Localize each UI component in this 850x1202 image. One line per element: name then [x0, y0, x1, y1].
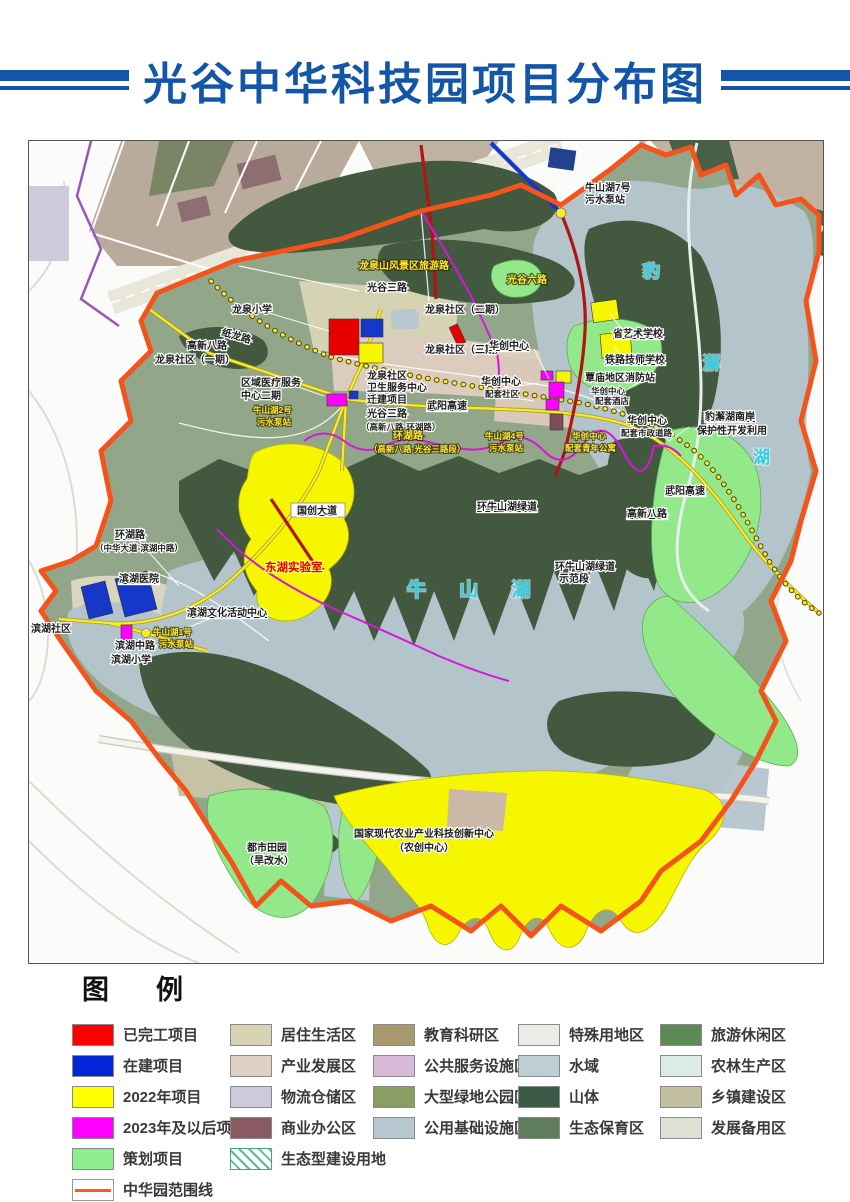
legend-item: 商业办公区 [230, 1116, 373, 1139]
title-bar-right-rules [721, 70, 850, 90]
label-greenway-demo: 环牛山湖绿道 [555, 560, 615, 573]
label-guanggu3-mid: 光谷三路 [366, 407, 408, 420]
label-lq1: 龙泉社区（一期） [154, 353, 235, 366]
label-huachuang: 华创中心 [489, 339, 529, 352]
label-longquan-primary: 龙泉小学 [231, 303, 272, 316]
planning-map: 牛山湖7号 污水泵站 龙泉山风景区旅游路 光谷六路 光谷三路 龙泉小学 纸龙路 … [29, 141, 823, 963]
inconstruction-block [361, 319, 383, 337]
legend-swatch-reserve-land [660, 1117, 702, 1139]
legend-item: 山体 [518, 1085, 660, 1108]
svg-text:配套社区: 配套社区 [485, 389, 520, 399]
rule-thick [721, 70, 850, 81]
svg-text:迁建项目: 迁建项目 [367, 393, 407, 406]
legend-item: 居住生活区 [230, 1023, 373, 1046]
label-scenic-road: 龙泉山风景区旅游路 [358, 259, 450, 272]
label-binhu-hospital: 滨湖医院 [119, 572, 159, 585]
svg-text:（旱改水）: （旱改水） [244, 854, 294, 867]
label-binhu-mid-road: 滨湖中路 [115, 639, 156, 652]
legend-swatch-eco-construction [230, 1148, 272, 1170]
label-pump4: 牛山湖4号 [485, 431, 524, 441]
legend-item: 特殊用地区 [518, 1023, 660, 1046]
legend-swatch-education [373, 1024, 415, 1046]
legend-column-3: 教育科研区 公共服务设施区 大型绿地公园区 公用基础设施区 [373, 1023, 518, 1202]
legend-item: 生态型建设用地 [230, 1147, 373, 1170]
label-gaoxin8-se: 高新八路 [627, 507, 668, 520]
legend-item: 在建项目 [72, 1054, 230, 1077]
label-guanggu6: 光谷六路 [506, 273, 548, 286]
label-art-school: 省艺术学校 [612, 327, 664, 340]
legend-item: 水域 [518, 1054, 660, 1077]
legend-swatch-park-green [373, 1086, 415, 1108]
nw-logistics-block [29, 186, 69, 261]
legend-item: 物流仓储区 [230, 1085, 373, 1108]
label-binhu-community: 滨湖社区 [31, 622, 71, 635]
title-bar-left-rules [0, 70, 129, 90]
legend-swatch-agriculture [660, 1055, 702, 1077]
label-pump1: 牛山湖1号 [153, 627, 192, 637]
svg-text:保护性开发利用: 保护性开发利用 [696, 424, 767, 437]
legend-swatch-commercial [230, 1117, 272, 1139]
legend-item: 发展备用区 [660, 1116, 810, 1139]
pump7-dot [556, 208, 566, 218]
completed-block [329, 319, 359, 355]
label-hygiene-center: 龙泉社区 [366, 369, 407, 382]
page-title: 光谷中华科技园项目分布图 [143, 48, 707, 112]
label-medical: 区域医疗服务 [241, 376, 302, 389]
label-huanhu-mid: 环湖路 [393, 429, 424, 442]
svg-text:污水泵站: 污水泵站 [585, 193, 625, 206]
legend-column-5: 旅游休闲区 农林生产区 乡镇建设区 发展备用区 [660, 1023, 810, 1202]
rule-thin [721, 86, 850, 90]
legend-swatch-completed [72, 1024, 114, 1046]
legend-swatch-planned [72, 1148, 114, 1170]
label-guochuang: 国创大道 [297, 504, 337, 517]
legend-item: 教育科研区 [373, 1023, 518, 1046]
label-lq2: 龙泉社区（二期） [424, 303, 505, 316]
label-huachuang-comm: 华创中心 [481, 375, 521, 388]
svg-text:配套市政道路: 配套市政道路 [621, 428, 673, 438]
legend-swatch-2022 [72, 1086, 114, 1108]
legend: 图 例 已完工项目 在建项目 2022年项目 2023年及以后项目 策划项 [0, 968, 850, 1202]
svg-text:（高新八路-光谷三路段）: （高新八路-光谷三路段） [369, 444, 465, 454]
legend-swatch-inconstruction [72, 1055, 114, 1077]
legend-column-2: 居住生活区 产业发展区 物流仓储区 商业办公区 生态型建设用地 [230, 1023, 373, 1202]
svg-text:污水泵站: 污水泵站 [159, 639, 194, 649]
legend-item: 产业发展区 [230, 1054, 373, 1077]
svg-text:污水泵站: 污水泵站 [489, 443, 524, 453]
label-binhu-culture: 滨湖文化活动中心 [187, 606, 267, 619]
legend-grid: 已完工项目 在建项目 2022年项目 2023年及以后项目 策划项目 中华园范围… [72, 1023, 850, 1202]
legend-swatch-township [660, 1086, 702, 1108]
svg-text:配套酒店: 配套酒店 [595, 396, 630, 406]
legend-swatch-special [518, 1024, 560, 1046]
svg-text:卫生服务中心: 卫生服务中心 [367, 381, 427, 394]
legend-item: 中华园范围线 [72, 1178, 230, 1201]
legend-item: 旅游休闲区 [660, 1023, 810, 1046]
label-gaoxin8-w: 高新八路 [187, 339, 228, 352]
svg-text:污水泵站: 污水泵站 [257, 417, 292, 427]
future-block [549, 382, 564, 398]
svg-text:中心二期: 中心二期 [241, 389, 281, 402]
label-niushan-lake: 牛 山 湖 [407, 578, 545, 601]
school-block [548, 147, 577, 170]
legend-item: 2022年项目 [72, 1085, 230, 1108]
label-greenway: 环牛山湖绿道 [477, 500, 537, 513]
svg-text:（农创中心）: （农创中心） [394, 841, 454, 854]
legend-swatch-mountain [518, 1086, 560, 1108]
label-wuyang-se: 武阳高速 [665, 484, 705, 497]
legend-item: 农林生产区 [660, 1054, 810, 1077]
label-baoxie-3: 湖 [753, 448, 770, 467]
legend-title: 图 例 [82, 968, 850, 1007]
legend-item: 乡镇建设区 [660, 1085, 810, 1108]
label-wuyang-mid: 武阳高速 [427, 399, 467, 412]
legend-item: 公用基础设施区 [373, 1116, 518, 1139]
label-guanggu3: 光谷三路 [366, 281, 408, 294]
legend-swatch-2023plus [72, 1117, 114, 1139]
legend-swatch-boundary-line [72, 1179, 114, 1201]
legend-column-projects: 已完工项目 在建项目 2022年项目 2023年及以后项目 策划项目 中华园范围… [72, 1023, 230, 1202]
svg-text:配套青年公寓: 配套青年公寓 [565, 443, 617, 453]
legend-item: 生态保育区 [518, 1116, 660, 1139]
label-railway-school: 铁路技师学校 [605, 353, 666, 366]
label-muni-road: 华创中心 [627, 414, 667, 427]
label-binhu-primary: 滨湖小学 [111, 653, 151, 666]
label-agri-center: 国家现代农业产业科技创新中心 [354, 827, 494, 840]
legend-item: 公共服务设施区 [373, 1054, 518, 1077]
label-pump7: 牛山湖7号 [585, 181, 631, 194]
legend-item: 大型绿地公园区 [373, 1085, 518, 1108]
legend-swatch-infrastructure [373, 1117, 415, 1139]
rule-thick [0, 70, 129, 81]
svg-text:示范段: 示范段 [559, 572, 589, 585]
rule-thin [0, 86, 129, 90]
label-donghu-lab: 东湖实验室 [265, 560, 323, 574]
title-bar: 光谷中华科技园项目分布图 [0, 48, 850, 112]
svg-text:（中华大道-滨湖中路）: （中华大道-滨湖中路） [95, 543, 183, 553]
map-canvas: 牛山湖7号 污水泵站 龙泉山风景区旅游路 光谷六路 光谷三路 龙泉小学 纸龙路 … [28, 140, 824, 964]
label-pump2: 牛山湖2号 [253, 405, 292, 415]
label-baoxie-south: 豹澥湖南岸 [704, 410, 755, 423]
legend-swatch-industry [230, 1055, 272, 1077]
legend-item: 已完工项目 [72, 1023, 230, 1046]
label-garden: 都市田园 [246, 841, 287, 854]
label-youth: 华创中心 [572, 431, 607, 441]
legend-swatch-tourism [660, 1024, 702, 1046]
legend-item: 2023年及以后项目 [72, 1116, 230, 1139]
legend-swatch-logistics [230, 1086, 272, 1108]
label-fire-station: 覃庙地区消防站 [585, 371, 655, 384]
legend-swatch-water [518, 1055, 560, 1077]
legend-swatch-public-service [373, 1055, 415, 1077]
label-baoxie-1: 豹 [642, 261, 660, 281]
legend-swatch-residential [230, 1024, 272, 1046]
label-huanhu-w: 环湖路 [115, 528, 146, 541]
legend-swatch-eco-reserve [518, 1117, 560, 1139]
legend-column-4: 特殊用地区 水域 山体 生态保育区 [518, 1023, 660, 1202]
label-hotel: 华创中心 [591, 386, 626, 396]
label-baoxie-2: 澥 [703, 353, 720, 373]
legend-item: 策划项目 [72, 1147, 230, 1170]
page: 光谷中华科技园项目分布图 [0, 0, 850, 1202]
